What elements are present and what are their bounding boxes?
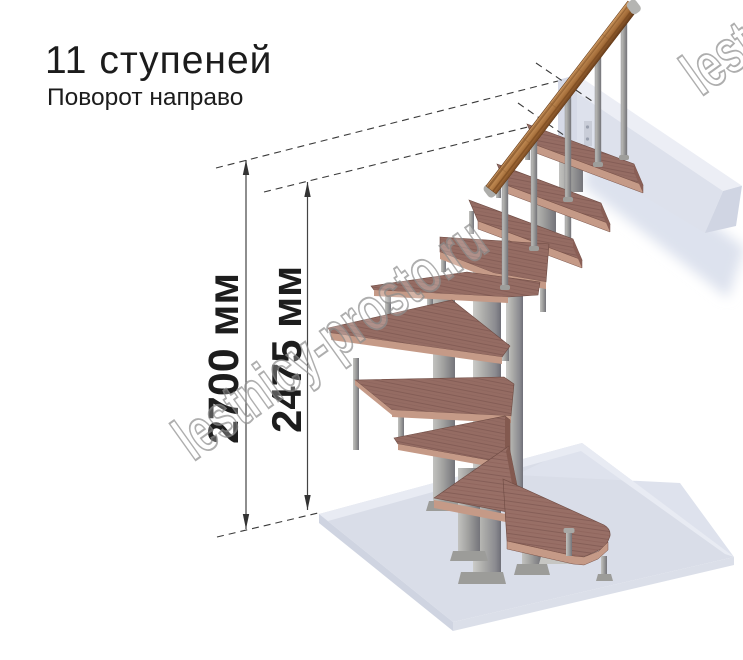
svg-text:Поворот направо: Поворот направо xyxy=(47,84,243,111)
svg-text:11 ступеней: 11 ступеней xyxy=(45,39,272,82)
